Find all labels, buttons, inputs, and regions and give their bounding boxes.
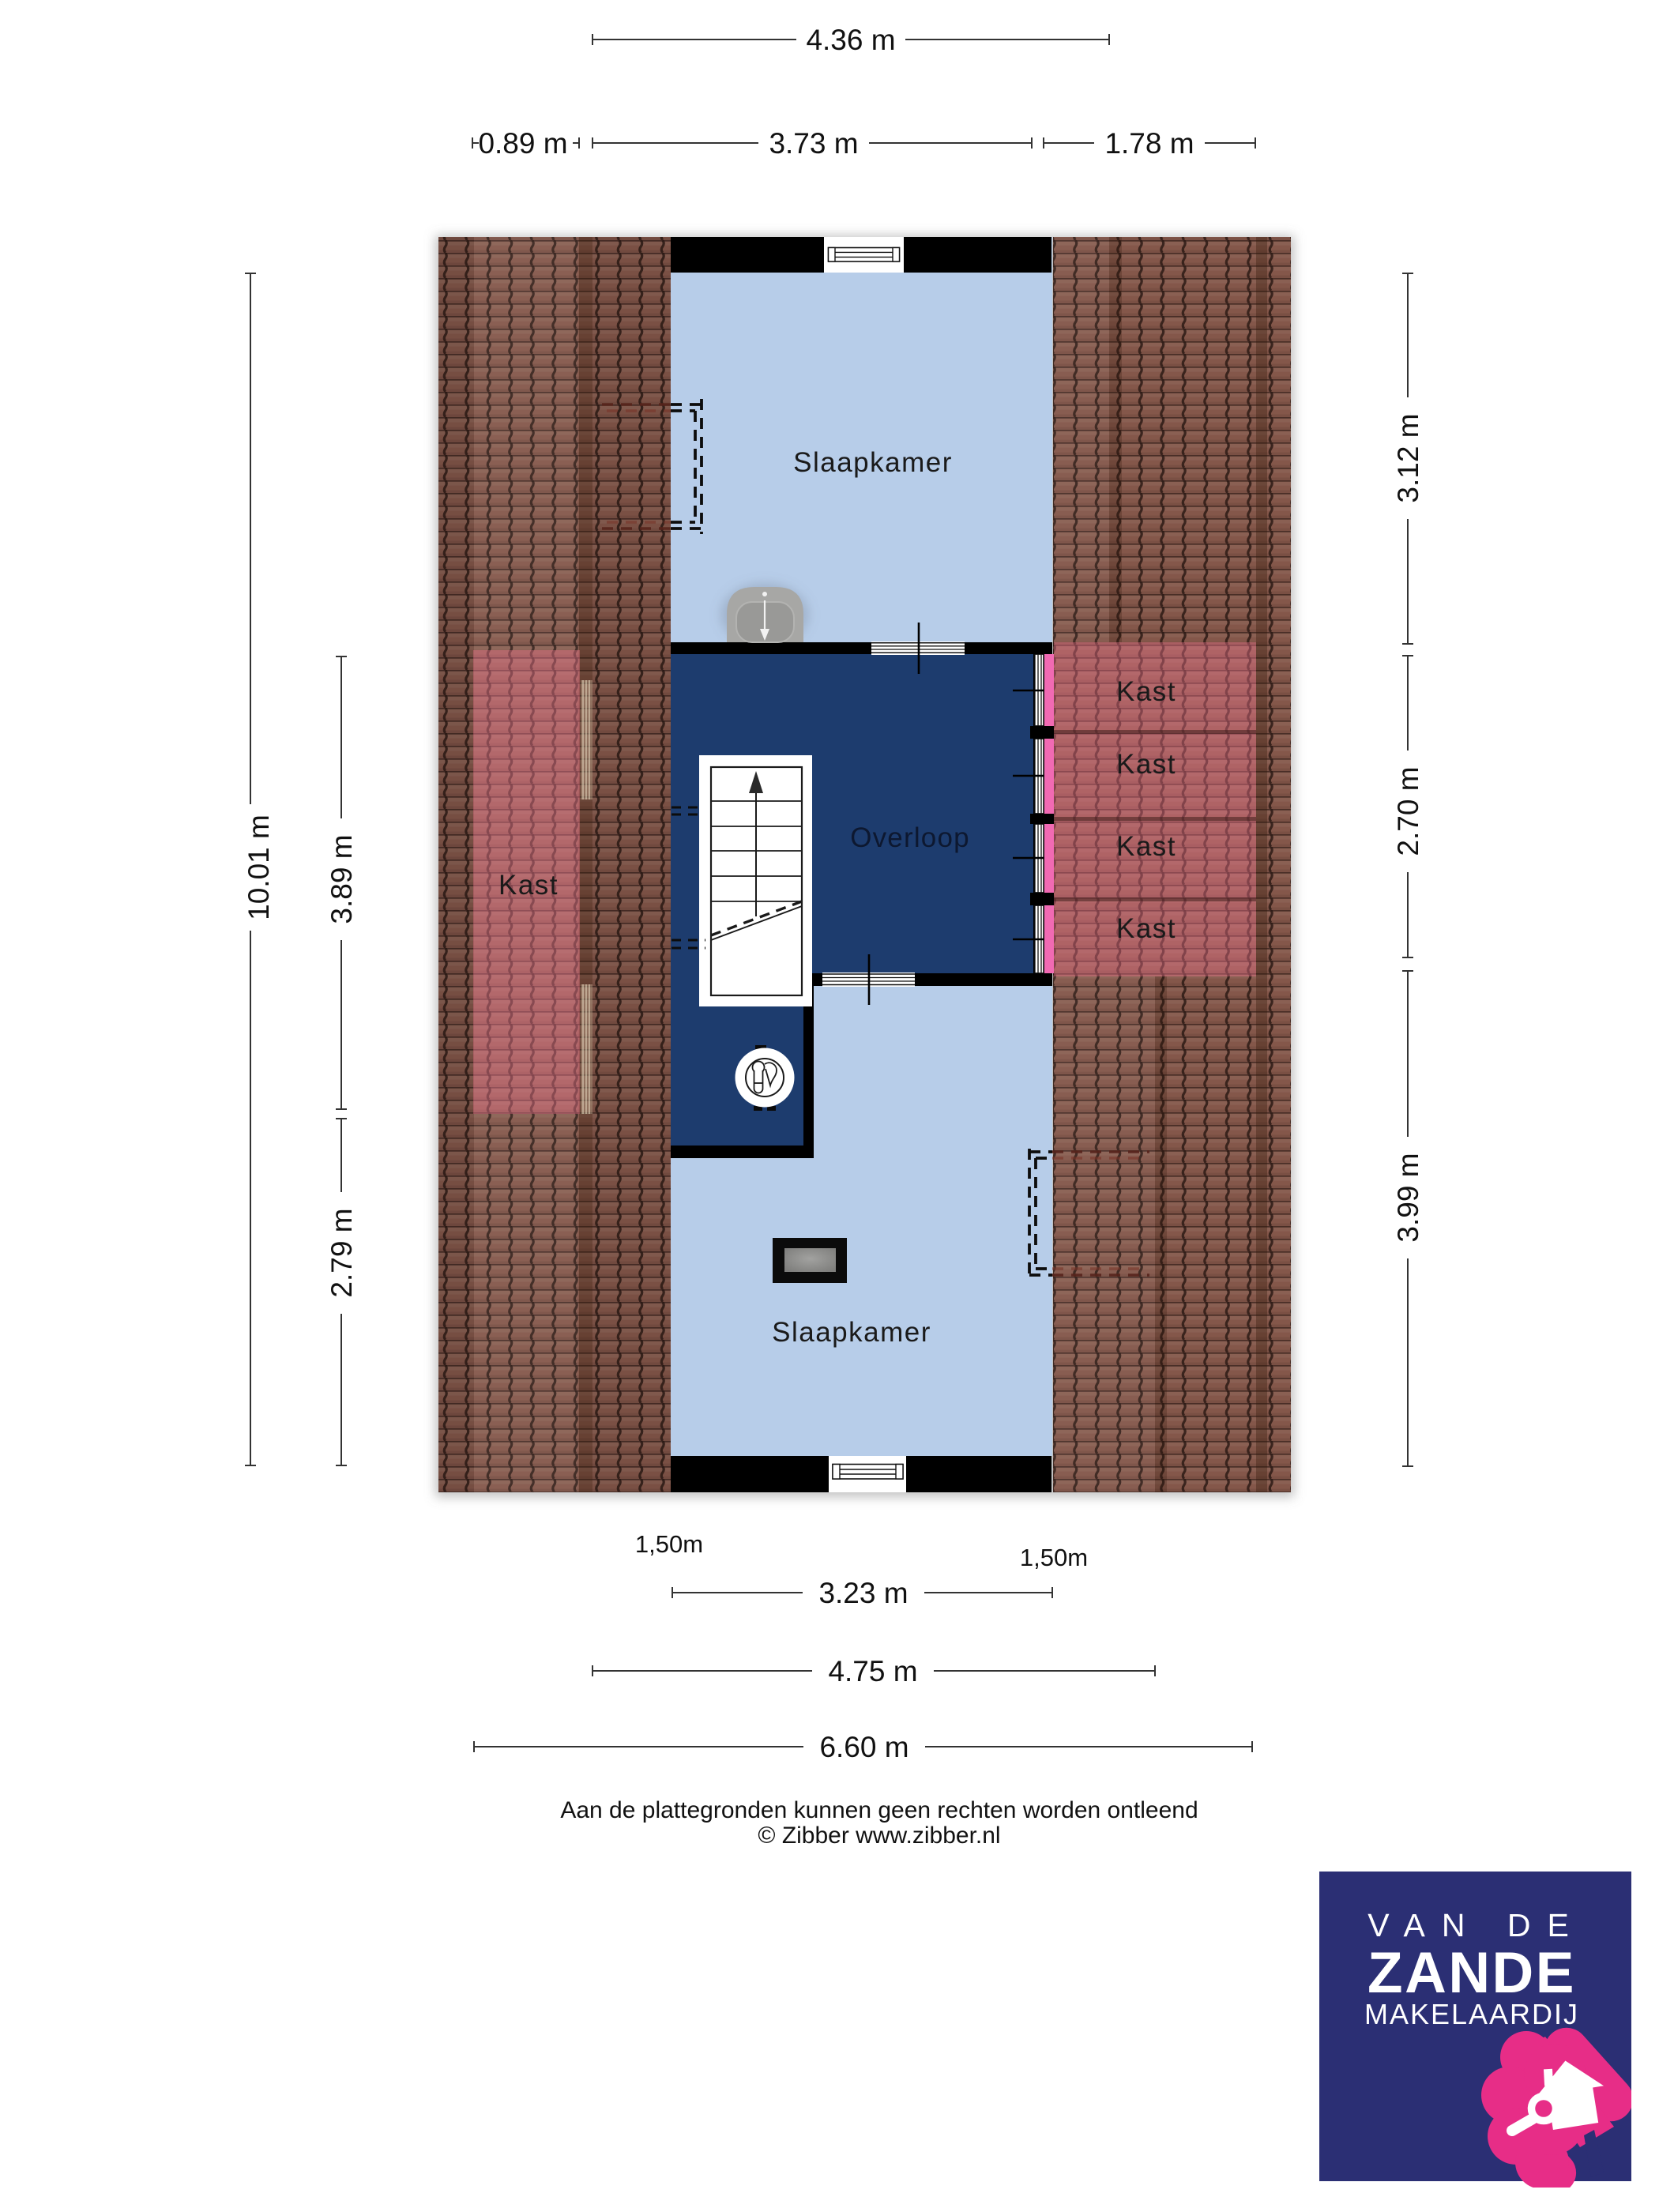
svg-text:VAN DE: VAN DE [1367, 1907, 1586, 1943]
svg-text:© Zibber www.zibber.nl: © Zibber www.zibber.nl [758, 1823, 1000, 1849]
svg-text:3.23 m: 3.23 m [818, 1577, 908, 1609]
svg-text:Slaapkamer: Slaapkamer [793, 447, 953, 478]
svg-text:3.99 m: 3.99 m [1392, 1153, 1424, 1242]
svg-text:4.36 m: 4.36 m [806, 24, 895, 56]
svg-text:MAKELAARDIJ: MAKELAARDIJ [1364, 1998, 1579, 2030]
svg-text:2.79 m: 2.79 m [325, 1208, 358, 1297]
svg-text:1,50m: 1,50m [1020, 1544, 1088, 1571]
svg-text:Slaapkamer: Slaapkamer [772, 1317, 931, 1348]
svg-text:1.78 m: 1.78 m [1104, 127, 1194, 160]
svg-text:Kast: Kast [1116, 749, 1176, 780]
svg-text:ZANDE: ZANDE [1367, 1941, 1576, 2005]
svg-text:Overloop: Overloop [850, 822, 970, 853]
svg-text:Kast: Kast [1116, 913, 1176, 944]
svg-text:6.60 m: 6.60 m [819, 1731, 908, 1763]
svg-text:4.75 m: 4.75 m [828, 1655, 917, 1687]
svg-text:1,50m: 1,50m [635, 1530, 703, 1558]
svg-text:Kast: Kast [1116, 831, 1176, 862]
svg-text:10.01 m: 10.01 m [243, 814, 275, 920]
svg-text:0.89 m: 0.89 m [478, 127, 567, 160]
svg-text:3.12 m: 3.12 m [1392, 413, 1424, 502]
svg-text:Kast: Kast [1116, 676, 1176, 707]
svg-text:Kast: Kast [498, 870, 559, 901]
svg-text:Aan de plattegronden kunnen ge: Aan de plattegronden kunnen geen rechten… [560, 1797, 1198, 1823]
svg-text:2.70 m: 2.70 m [1392, 766, 1424, 856]
svg-text:3.73 m: 3.73 m [769, 127, 858, 160]
svg-text:3.89 m: 3.89 m [325, 834, 358, 924]
